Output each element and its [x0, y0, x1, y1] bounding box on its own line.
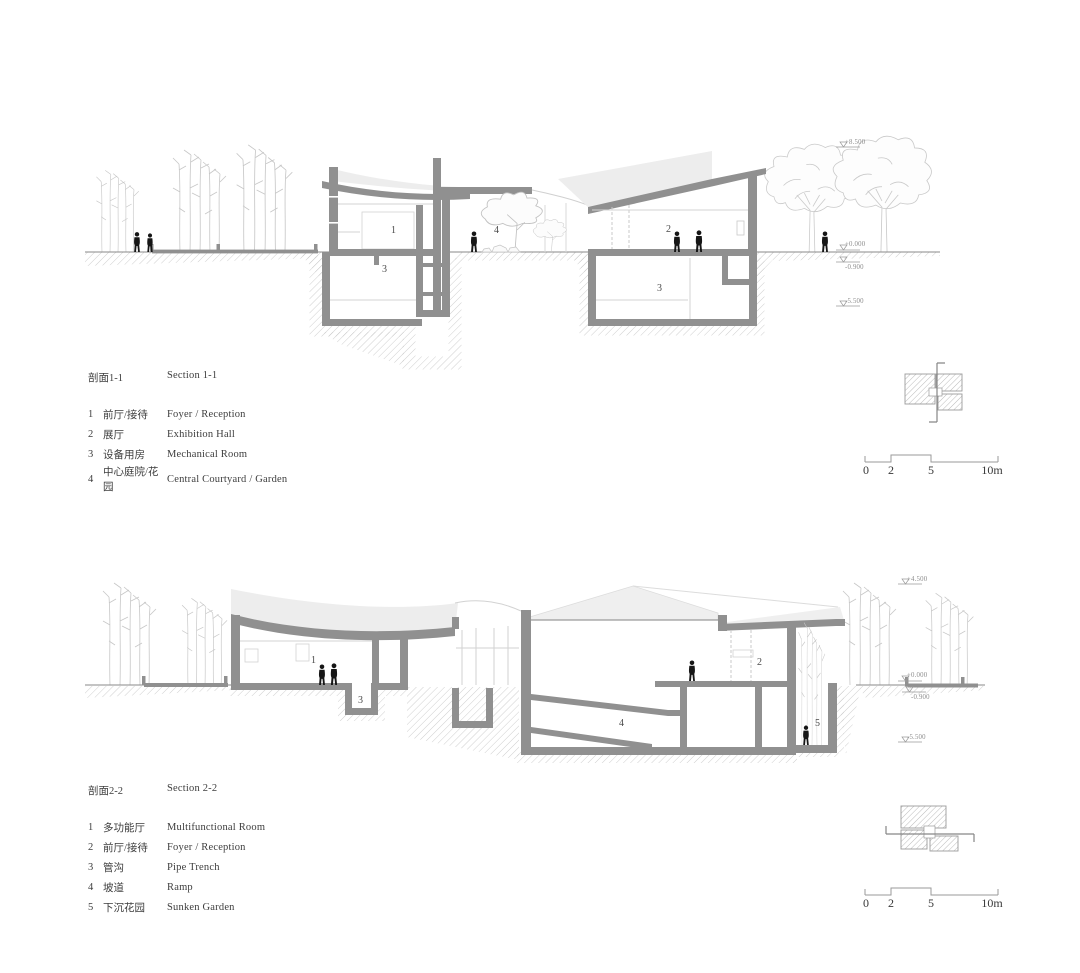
legend-item: 1 多功能厅 Multifunctional Room [88, 817, 508, 837]
svg-text:2: 2 [888, 896, 894, 910]
legend-item: 2 展厅 Exhibition Hall [88, 424, 508, 444]
svg-text:+4.500: +4.500 [907, 576, 928, 583]
legend-item: 3 设备用房 Mechanical Room [88, 444, 508, 464]
svg-text:10m: 10m [981, 896, 1003, 910]
legend-num: 1 [88, 822, 103, 833]
architectural-sections-sheet: 1 2 3 3 4 +8.500 +0.000 -0.900 -5.500 [0, 0, 1080, 973]
legend-zh: 坡道 [103, 880, 167, 895]
room-label-pipe-trench: 3 [358, 695, 363, 706]
legend-zh: 多功能厅 [103, 820, 167, 835]
pine-tree-sketch [533, 219, 566, 252]
section-2-title-zh: 剖面2-2 [88, 783, 167, 798]
legend-item: 2 前厅/接待 Foyer / Reception [88, 837, 508, 857]
ramp-hall-building [521, 586, 845, 755]
legend-en: Foyer / Reception [167, 409, 508, 420]
svg-text:-0.900: -0.900 [911, 694, 930, 701]
room-label-sunken-garden: 5 [815, 718, 820, 729]
svg-text:5: 5 [928, 463, 934, 477]
key-plan-section-1 [905, 363, 962, 422]
room-label-foyer: 1 [391, 225, 396, 236]
section-2-title-en: Section 2-2 [167, 783, 508, 798]
legend-num: 1 [88, 409, 103, 420]
person-figure [134, 230, 828, 252]
legend-zh: 中心庭院/花园 [103, 464, 167, 494]
section-2-title: 剖面2-2 Section 2-2 [88, 783, 508, 798]
room-label-courtyard: 4 [494, 225, 499, 236]
svg-text:10m: 10m [981, 463, 1003, 477]
svg-text:+0.000: +0.000 [907, 672, 928, 679]
legend-item: 4 坡道 Ramp [88, 877, 508, 897]
scale-bar-1: 0 2 5 10m [863, 455, 1003, 477]
legend-section-2: 剖面2-2 Section 2-2 1 多功能厅 Multifunctional… [88, 783, 508, 917]
sunken-garden [795, 623, 837, 753]
building-beyond-sketch [455, 601, 521, 685]
legend-zh: 前厅/接待 [103, 840, 167, 855]
section-1-title: 剖面1-1 Section 1-1 [88, 370, 508, 385]
legend-zh: 设备用房 [103, 447, 167, 462]
exhibition-building [558, 151, 766, 326]
legend-en: Central Courtyard / Garden [167, 474, 508, 485]
scale-bar-2: 0 2 5 10m [863, 888, 1003, 910]
legend-en: Multifunctional Room [167, 822, 508, 833]
legend-en: Ramp [167, 882, 508, 893]
room-label-ramp: 4 [619, 718, 624, 729]
legend-item: 3 管沟 Pipe Trench [88, 857, 508, 877]
svg-text:-5.500: -5.500 [907, 734, 926, 741]
walkway-slab [150, 244, 318, 253]
legend-section-1: 剖面1-1 Section 1-1 1 前厅/接待 Foyer / Recept… [88, 370, 508, 484]
svg-text:0: 0 [863, 463, 869, 477]
elevation-marker: +4.500 +0.000 -0.900 -5.500 [898, 576, 930, 742]
legend-item: 1 前厅/接待 Foyer / Reception [88, 404, 508, 424]
key-plan-section-2 [886, 806, 974, 851]
legend-num: 2 [88, 842, 103, 853]
room-label-exhibition: 2 [666, 224, 671, 235]
legend-zh: 下沉花园 [103, 900, 167, 915]
svg-text:-0.900: -0.900 [845, 264, 864, 271]
rocks-sketch [482, 245, 520, 252]
legend-en: Foyer / Reception [167, 842, 508, 853]
multifunctional-building [231, 589, 459, 690]
svg-text:+0.000: +0.000 [845, 241, 866, 248]
legend-num: 2 [88, 429, 103, 440]
legend-en: Sunken Garden [167, 902, 508, 913]
legend-num: 4 [88, 474, 103, 485]
svg-text:+8.500: +8.500 [845, 139, 866, 146]
svg-text:5: 5 [928, 896, 934, 910]
bamboo-sketch [799, 623, 826, 745]
pine-tree-sketch [481, 192, 542, 252]
legend-item: 5 下沉花园 Sunken Garden [88, 897, 508, 917]
courtyard-garden [481, 192, 566, 252]
ground-hatch [85, 252, 940, 366]
legend-num: 3 [88, 862, 103, 873]
section-1-title-zh: 剖面1-1 [88, 370, 167, 385]
legend-en: Mechanical Room [167, 449, 508, 460]
room-label-multifunctional: 1 [311, 655, 316, 666]
legend-zh: 展厅 [103, 427, 167, 442]
svg-text:0: 0 [863, 896, 869, 910]
legend-item: 4 中心庭院/花园 Central Courtyard / Garden [88, 464, 508, 484]
legend-num: 5 [88, 902, 103, 913]
section-2-2-drawing: 1 2 3 4 5 +4.500 +0.000 -0.900 -5.500 [85, 576, 985, 760]
legend-en: Exhibition Hall [167, 429, 508, 440]
legend-en: Pipe Trench [167, 862, 508, 873]
legend-num: 3 [88, 449, 103, 460]
legend-zh: 前厅/接待 [103, 407, 167, 422]
svg-text:2: 2 [888, 463, 894, 477]
deciduous-tree-sketch [765, 136, 932, 252]
section-1-title-en: Section 1-1 [167, 370, 508, 385]
legend-zh: 管沟 [103, 860, 167, 875]
room-label-foyer2: 2 [757, 657, 762, 668]
room-label-mechanical-b: 3 [657, 283, 662, 294]
section-1-1-drawing: 1 2 3 3 4 +8.500 +0.000 -0.900 -5.500 [85, 136, 940, 366]
svg-text:-5.500: -5.500 [845, 298, 864, 305]
room-label-mechanical-a: 3 [382, 264, 387, 275]
legend-num: 4 [88, 882, 103, 893]
bamboo-sketch [96, 145, 292, 252]
